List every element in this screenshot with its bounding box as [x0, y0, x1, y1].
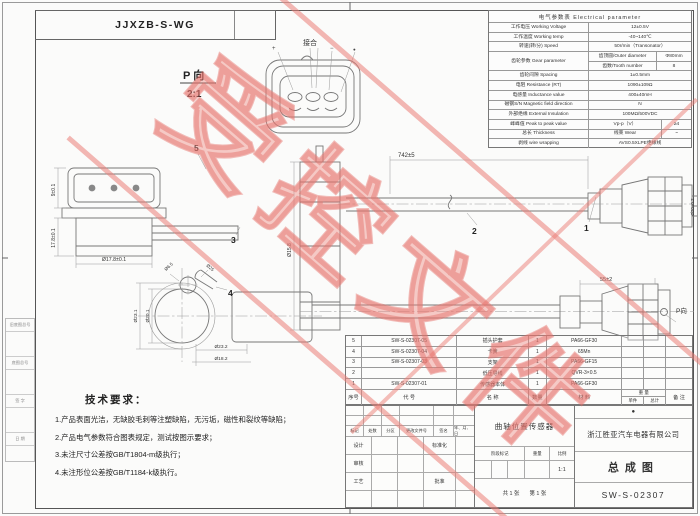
drawing-code-box: JJXZB-S-WG	[35, 10, 276, 40]
param-row: 电阻 Resistance (RT)1090±109Ω	[489, 80, 691, 90]
balloon-4: 4	[228, 288, 233, 298]
parts-row: 1SW-S-02307-01传感器本体1PA66-GF30	[346, 379, 692, 390]
sheet-total: 共 1 张	[503, 489, 520, 497]
dim-head-d2: Ø20.1	[145, 309, 151, 322]
rev-header-count: 处数	[364, 426, 382, 436]
binding-margin-strip: 旧底图总号 底图总号 签 字 日 期	[5, 318, 35, 462]
rev-header-mark: 标记	[346, 426, 364, 436]
parts-row: 4SW-S-02307-04卡簧165Mn	[346, 347, 692, 358]
product-name: 曲轴位置传感器	[475, 406, 573, 447]
p-view-scale: 2:1	[187, 89, 202, 100]
parts-row: 3SW-S-02307-03支架1PA66-GF15	[346, 358, 692, 369]
drawing-number: SW-S-02307	[575, 483, 692, 507]
balloon-5: 5	[194, 143, 199, 153]
margin-label: 旧底图总号	[6, 319, 34, 332]
scale-label: 比例	[550, 447, 573, 460]
margin-label: 签 字	[6, 395, 34, 408]
param-row: 工作温度 Working temp-40~140℃	[489, 32, 691, 42]
weight-label: 重量	[525, 447, 550, 460]
parts-header-row: 序号 代 号 名 称 数量 材 料 重 量 单件总计 备 注	[346, 390, 692, 405]
dim-front-diameter: Ø17.8±0.1	[102, 257, 126, 263]
tech-requirement-item: 2.产品电气参数符合图表规定，测试按图示要求；	[55, 429, 333, 447]
param-table-title: 电气参数表 Electrical parameter	[489, 11, 691, 22]
param-row: 齿轮间隙 Spacing1±0.5mm	[489, 70, 691, 80]
param-row: 总长 Thickness线束 Wear~	[489, 129, 691, 139]
margin-label: 日 期	[6, 433, 34, 446]
dim-body-diameter: Ø15.8	[287, 243, 293, 257]
param-row: 电感量 Inductance value400±40mH	[489, 90, 691, 100]
param-row-gear: 齿轮参数 Gear parameter 齿顶圆/Outer diameterΦ8…	[489, 51, 691, 70]
sign-check: 审核	[346, 455, 372, 472]
param-row: 工作电压 Working Voltage12±0.5V	[489, 22, 691, 32]
drawing-title: 总成图	[575, 452, 692, 483]
tech-requirement-item: 1.产品表面光洁，无缺胶毛刺等注塑缺陷，无污垢，磁性和裂纹等缺陷；	[55, 411, 333, 429]
sheet-page: 第 1 张	[529, 489, 546, 497]
drawing-sheet: P 向 2:1 + 接合 − ●	[0, 0, 700, 516]
company-name: 浙江胜亚汽车电器有限公司	[575, 419, 692, 452]
sign-craft: 工艺	[346, 473, 372, 490]
dim-connector-diameter: Ø20±0.2	[690, 198, 695, 216]
title-block-right: ● 浙江胜亚汽车电器有限公司 总成图 SW-S-02307	[575, 406, 692, 507]
margin-label: 底图总号	[6, 357, 34, 370]
approval-dot: ●	[632, 409, 636, 415]
title-block-middle: 曲轴位置传感器 阶段标记 重量 比例 1:1 共 1 张 第 1 张	[475, 406, 574, 507]
dim-front-height: 9±0.1	[51, 184, 57, 197]
sign-approve: 批准	[424, 473, 456, 490]
pin-joint-label: 接合	[303, 38, 317, 47]
rev-header-sign: 签名	[434, 426, 454, 436]
dim-head-d1: Ø23.1	[133, 309, 139, 322]
dim-tail-length: 55±2	[600, 277, 612, 283]
balloon-3: 3	[231, 235, 236, 245]
sign-design: 设计	[346, 437, 372, 454]
p-view-label: P 向	[183, 68, 204, 82]
dim-ear-d1: Ø6.5	[163, 261, 174, 272]
sign-standard: 标准化	[424, 437, 456, 454]
rev-header-date: 年、月、日	[454, 426, 474, 436]
p-view-arrow-label: P向	[676, 306, 687, 315]
balloon-2: 2	[472, 226, 477, 236]
parts-row: 2低压导线1QVR-3×0.5	[346, 368, 692, 379]
dim-front-height2: 17.8±0.1	[51, 228, 57, 248]
tech-requirement-item: 4.未注形位公差按GB/T1184-k级执行。	[55, 464, 333, 482]
parts-list: 5SW-S-02307-05插头护套1PA66-GF30 4SW-S-02307…	[345, 335, 693, 405]
title-block-revision-area: 标记 处数 分区 更改文件号 签名 年、月、日 设计 标准化 审核 工艺 批准	[346, 406, 475, 507]
stage-mark-label: 阶段标记	[475, 447, 525, 460]
electrical-parameter-table: 电气参数表 Electrical parameter 工作电压 Working …	[488, 10, 692, 148]
rev-header-docno: 更改文件号	[400, 426, 434, 436]
title-block: 标记 处数 分区 更改文件号 签名 年、月、日 设计 标准化 审核 工艺 批准	[345, 405, 693, 508]
code-box-divider	[234, 11, 235, 39]
drawing-code: JJXZB-S-WG	[115, 19, 195, 31]
param-row: 剥线 wire wrappingAVS0.5XLPE绝缘线	[489, 138, 691, 148]
rev-header-zone: 分区	[382, 426, 400, 436]
dim-neck-d2: Ø18.2	[214, 356, 227, 362]
param-row: 转速(转/分) Speed50r/min（Transonator）	[489, 41, 691, 51]
param-row: 磁钢S/N Magnetic field directionN	[489, 100, 691, 110]
dim-neck-d1: Ø23.2	[214, 344, 227, 350]
dim-total-length: 742±5	[398, 153, 415, 159]
param-row: 外部绝缘 External Insulation100MΩ/500VDC	[489, 109, 691, 119]
parts-header-weight: 重 量 单件总计	[622, 390, 666, 405]
balloon-1: 1	[584, 223, 589, 233]
scale-value: 1:1	[550, 461, 573, 478]
pin-plus-mark: +	[272, 46, 276, 52]
tech-requirement-item: 3.未注尺寸公差按GB/T1804-m级执行；	[55, 446, 333, 464]
param-row: 峰峰值 Peak to peak valueVp-p（V）≥4	[489, 119, 691, 129]
parts-row: 5SW-S-02307-05插头护套1PA66-GF30	[346, 336, 692, 347]
tech-requirements-title: 技术要求：	[85, 392, 333, 407]
technical-requirements: 技术要求： 1.产品表面光洁，无缺胶毛刺等注塑缺陷，无污垢，磁性和裂纹等缺陷； …	[55, 392, 333, 481]
pin-minus-mark: −	[330, 46, 334, 52]
pin-dot-mark: ●	[353, 47, 356, 52]
